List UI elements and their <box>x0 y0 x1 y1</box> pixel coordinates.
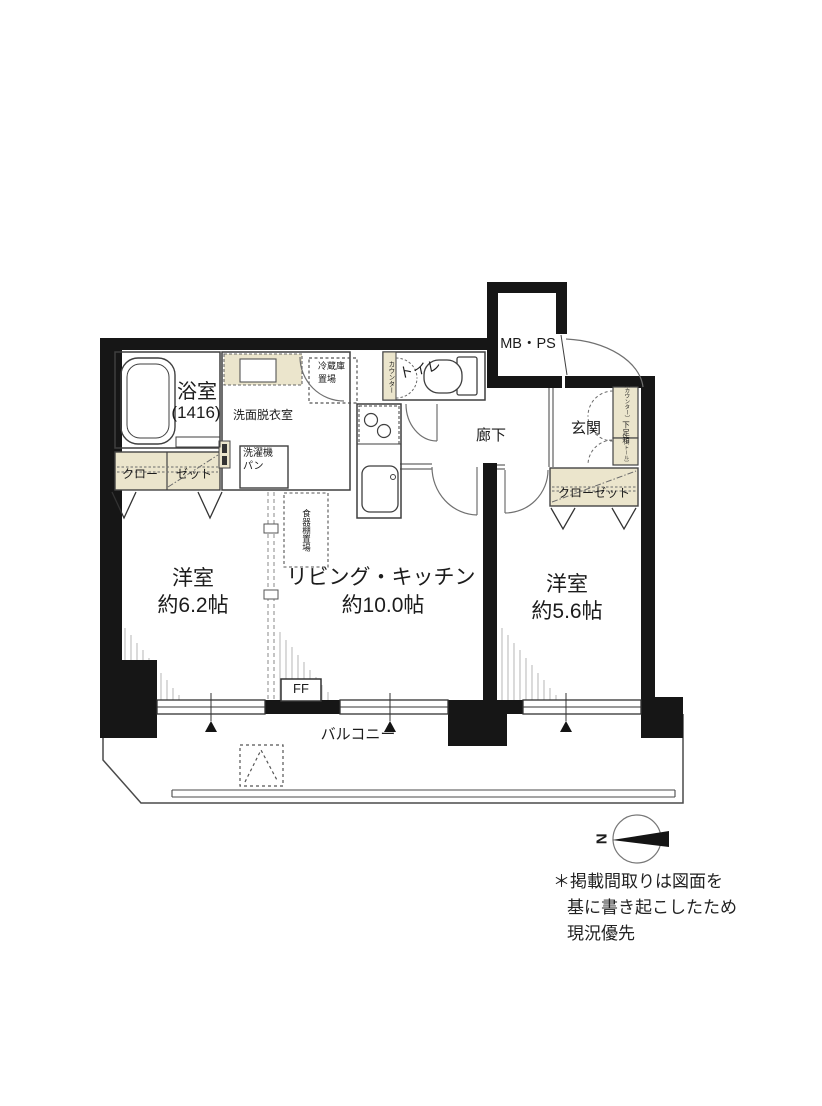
disclaimer-line-2: 基に書き起こしたため <box>553 895 737 921</box>
windows-layer <box>157 693 641 721</box>
fridge-space-label-1: 冷蔵庫 <box>318 362 345 371</box>
bath-size-label: (1416) <box>171 404 220 422</box>
closet-right-label: クローゼット <box>558 487 630 500</box>
compass-north-label: N <box>595 833 611 844</box>
western-room-right-label: 洋室 <box>546 574 588 596</box>
shoe-box-label: 〔カウンター〕下足箱 <box>613 389 638 436</box>
fridge-space-label-2: 置場 <box>318 375 336 384</box>
floorplan-canvas: 浴室 (1416) 洗面脱衣室 洗濯機 パン クロー ゼット 冷蔵庫 置場 カウ… <box>0 0 822 1106</box>
evacuation-hatch-icon <box>240 745 283 786</box>
ff-heater-label: FF <box>293 682 309 696</box>
hallway-label: 廊下 <box>476 428 506 444</box>
north-arrow-icon <box>612 815 669 863</box>
disclaimer-line-3: 現況優先 <box>553 921 737 947</box>
shoe-box-label-bracket: 〔カウンター〕 <box>623 382 629 421</box>
western-room-left-size: 約6.2帖 <box>157 595 228 617</box>
disclaimer-line-1: ＊掲載間取りは図面を <box>553 869 737 895</box>
washroom-label: 洗面脱衣室 <box>233 409 293 422</box>
closet-left-label-2: ゼット <box>176 468 212 481</box>
sliding-partition <box>264 492 278 700</box>
living-kitchen-size: 約10.0帖 <box>342 595 425 617</box>
western-room-right-size: 約5.6帖 <box>531 601 602 623</box>
washer-pan-label-1: 洗濯機 <box>243 449 273 460</box>
kitchen-stove-icon <box>359 406 399 444</box>
kitchen-sink-icon <box>362 466 398 512</box>
tall-cabinet-label: 〔トール〕 <box>613 440 638 464</box>
disclaimer-note: ＊掲載間取りは図面を 基に書き起こしたため 現況優先 <box>553 869 737 947</box>
mb-ps-label: MB・PS <box>500 337 556 352</box>
balcony-label: バルコニー <box>321 727 396 743</box>
bath-label: 浴室 <box>177 382 217 403</box>
living-kitchen-label: リビング・キッチン <box>287 567 476 589</box>
entrance-label: 玄関 <box>571 421 601 437</box>
cupboard-space-label: 食器棚置場 <box>296 497 316 563</box>
western-room-left-label: 洋室 <box>172 568 214 590</box>
washer-pan-label-2: パン <box>243 462 264 473</box>
closet-left-label-1: クロー <box>122 468 158 481</box>
toilet-counter-label: カウンター <box>383 355 396 399</box>
